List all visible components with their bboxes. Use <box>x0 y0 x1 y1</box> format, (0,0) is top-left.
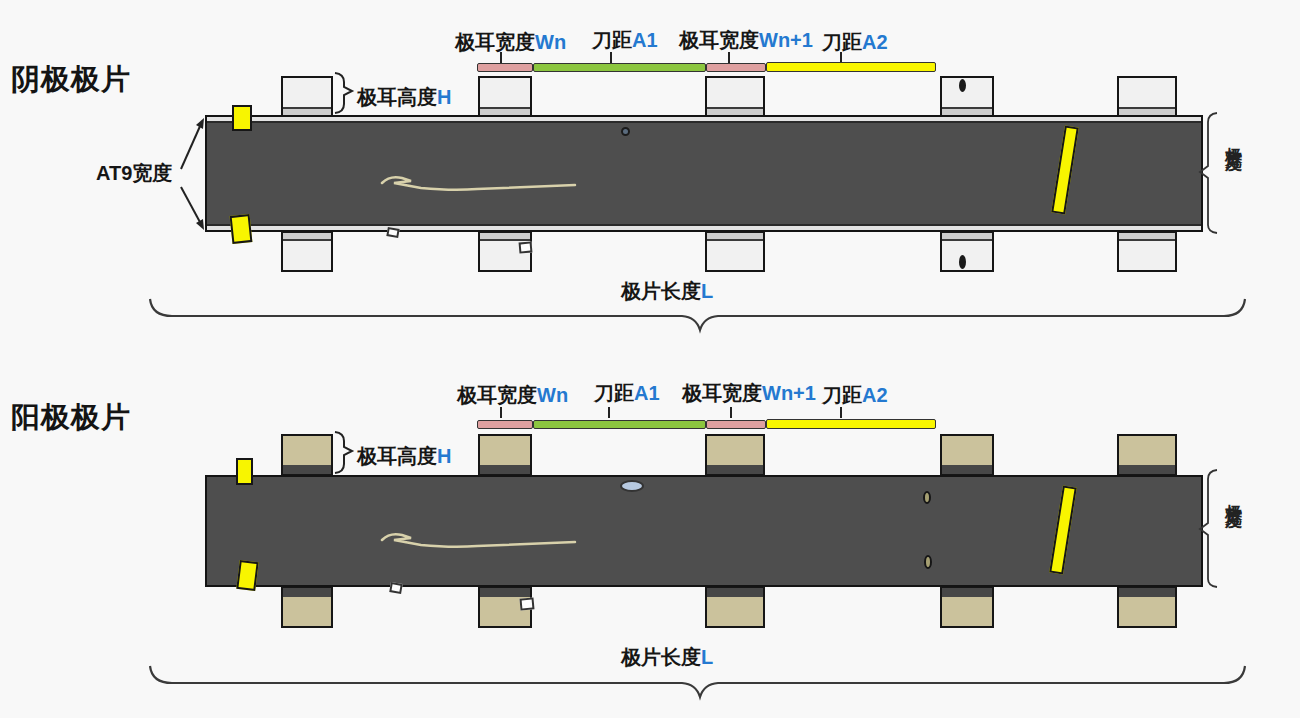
cathode-top-tab-4 <box>940 76 994 117</box>
tab-coating-band <box>283 107 331 115</box>
cathode-knife-a2-bar <box>766 62 936 72</box>
cathode-tab-width-bar-2 <box>706 63 766 72</box>
leader-tick <box>730 407 732 418</box>
anode-tab-height-label: 极耳高度H <box>357 443 451 470</box>
foil-edge <box>207 117 1201 123</box>
anode-tab-width-wn-label: 极耳宽度Wn <box>457 382 568 409</box>
tab-coating-band <box>942 233 992 241</box>
anode-tab-width-bar-2 <box>706 420 766 429</box>
edge-notch-defect <box>520 597 535 610</box>
anode-bottom-tab-4 <box>940 586 994 628</box>
knife-a1-var: A1 <box>634 382 660 404</box>
at9-arrow-bottom <box>181 187 201 224</box>
tab-coating-band <box>283 588 331 597</box>
tab-width-n1-var: Wn+1 <box>762 382 816 404</box>
tab-coating-band <box>942 465 992 474</box>
tab-coating-band <box>480 233 530 241</box>
anode-top-tab-2 <box>478 434 532 476</box>
tab-width-var: Wn <box>535 31 566 53</box>
tab-mark-dot <box>959 79 966 92</box>
sheet-length-var: L <box>701 646 713 668</box>
electrode-diagram: 阴极极片 极耳宽度Wn 刀距A1 极耳宽度Wn+1 刀距A2 <box>0 0 1300 718</box>
tab-width-n1-var: Wn+1 <box>759 29 813 51</box>
anode-top-tab-4 <box>940 434 994 476</box>
tab-coating-band <box>707 107 763 115</box>
cathode-knife-a2-label: 刀距A2 <box>822 29 888 56</box>
cathode-sheet-length-label: 极片长度L <box>621 278 713 305</box>
yellow-tape-mark <box>230 214 253 244</box>
leader-tick <box>728 52 730 63</box>
cathode-bottom-tab-3 <box>705 231 765 272</box>
anode-knife-a2-bar <box>766 419 936 429</box>
tab-coating-band <box>1119 588 1175 597</box>
cathode-top-tab-2 <box>478 76 532 117</box>
knife-a2-var: A2 <box>862 31 888 53</box>
knife-a1-zh: 刀距 <box>592 29 632 51</box>
yellow-tape-mark <box>232 105 252 131</box>
tab-coating-band <box>480 107 530 115</box>
sheet-length-zh: 极片长度 <box>621 280 701 302</box>
tab-width-n1-zh: 极耳宽度 <box>679 29 759 51</box>
tab-height-var: H <box>437 445 451 467</box>
tab-mark-dot <box>924 555 932 569</box>
anode-title: 阳极极片 <box>11 398 131 438</box>
tab-width-var: Wn <box>537 384 568 406</box>
sheet-length-zh: 极片长度 <box>621 646 701 668</box>
anode-knife-a2-label: 刀距A2 <box>822 382 888 409</box>
tab-width-zh: 极耳宽度 <box>457 384 537 406</box>
annotation-overlay <box>0 0 1300 718</box>
cathode-tab-width-bar-1 <box>477 63 533 72</box>
tab-coating-band <box>942 107 992 115</box>
tab-width-n1-zh: 极耳宽度 <box>682 382 762 404</box>
at9-arrowhead-top <box>196 118 204 129</box>
tab-height-zh: 极耳高度 <box>357 445 437 467</box>
cathode-knife-a1-label: 刀距A1 <box>592 27 658 54</box>
leader-tick <box>610 52 612 63</box>
cathode-tab-width-wn1-label: 极耳宽度Wn+1 <box>679 27 813 54</box>
pinhole-defect-dot <box>621 127 630 136</box>
tab-coating-band <box>1119 233 1175 241</box>
tab-height-var: H <box>437 86 451 108</box>
leader-tick <box>500 407 502 418</box>
tab-height-zh: 极耳高度 <box>357 86 437 108</box>
tab-mark-dot <box>923 491 931 504</box>
at9-arrow-top <box>181 124 201 169</box>
yellow-tape-mark <box>236 560 258 591</box>
anode-top-tab-1 <box>281 434 333 476</box>
leader-tick <box>500 52 502 63</box>
anode-sheet-width-label: 极片宽度 <box>1223 490 1244 498</box>
tab-coating-band <box>707 233 763 241</box>
tab-coating-band <box>1119 107 1175 115</box>
knife-a1-zh: 刀距 <box>594 382 634 404</box>
cathode-sheet-width-label: 极片宽度 <box>1223 133 1244 141</box>
cathode-tab-width-wn-label: 极耳宽度Wn <box>455 29 566 56</box>
tab-coating-band <box>707 588 763 597</box>
cathode-tab-height-bracket <box>335 73 352 113</box>
anode-top-tab-5 <box>1117 434 1177 476</box>
tab-coating-band <box>480 588 530 597</box>
anode-bottom-tab-1 <box>281 586 333 628</box>
anode-tab-height-bracket <box>335 432 352 473</box>
sheet-length-var: L <box>701 280 713 302</box>
tab-coating-band <box>283 233 331 241</box>
cathode-knife-a1-bar <box>533 63 706 72</box>
cathode-bottom-tab-1 <box>281 231 333 272</box>
anode-bottom-tab-3 <box>705 586 765 628</box>
leader-tick <box>608 407 610 418</box>
knife-a2-zh: 刀距 <box>822 31 862 53</box>
cathode-top-tab-1 <box>281 76 333 117</box>
foil-edge <box>207 224 1201 230</box>
edge-notch-defect <box>519 241 533 253</box>
cathode-top-tab-5 <box>1117 76 1177 117</box>
cathode-at9-width-label: AT9宽度 <box>96 160 172 187</box>
tab-coating-band <box>707 465 763 474</box>
cathode-bottom-tab-5 <box>1117 231 1177 272</box>
cathode-title: 阴极极片 <box>11 60 131 100</box>
anode-sheet-length-label: 极片长度L <box>621 644 713 671</box>
cathode-top-tab-3 <box>705 76 765 117</box>
anode-tab-width-bar-1 <box>477 420 533 429</box>
edge-notch-defect <box>389 582 403 594</box>
tab-width-zh: 极耳宽度 <box>455 31 535 53</box>
knife-a1-var: A1 <box>632 29 658 51</box>
knife-a2-var: A2 <box>862 384 888 406</box>
anode-tab-width-wn1-label: 极耳宽度Wn+1 <box>682 380 816 407</box>
tab-coating-band <box>283 465 331 474</box>
cathode-strip <box>205 115 1203 232</box>
tab-coating-band <box>942 588 992 597</box>
cathode-tab-height-label: 极耳高度H <box>357 84 451 111</box>
anode-top-tab-3 <box>705 434 765 476</box>
anode-knife-a1-label: 刀距A1 <box>594 380 660 407</box>
anode-bottom-tab-5 <box>1117 586 1177 628</box>
tab-coating-band <box>1119 465 1175 474</box>
leader-tick <box>840 407 842 418</box>
yellow-tape-mark <box>236 458 253 485</box>
tab-coating-band <box>480 465 530 474</box>
anode-knife-a1-bar <box>533 420 706 429</box>
edge-notch-defect <box>386 227 399 238</box>
tab-mark-dot <box>959 255 966 269</box>
knife-a2-zh: 刀距 <box>822 384 862 406</box>
bubble-defect-ellipse <box>620 480 644 492</box>
cathode-bottom-tab-4 <box>940 231 994 272</box>
at9-arrowhead-bottom <box>196 219 204 230</box>
